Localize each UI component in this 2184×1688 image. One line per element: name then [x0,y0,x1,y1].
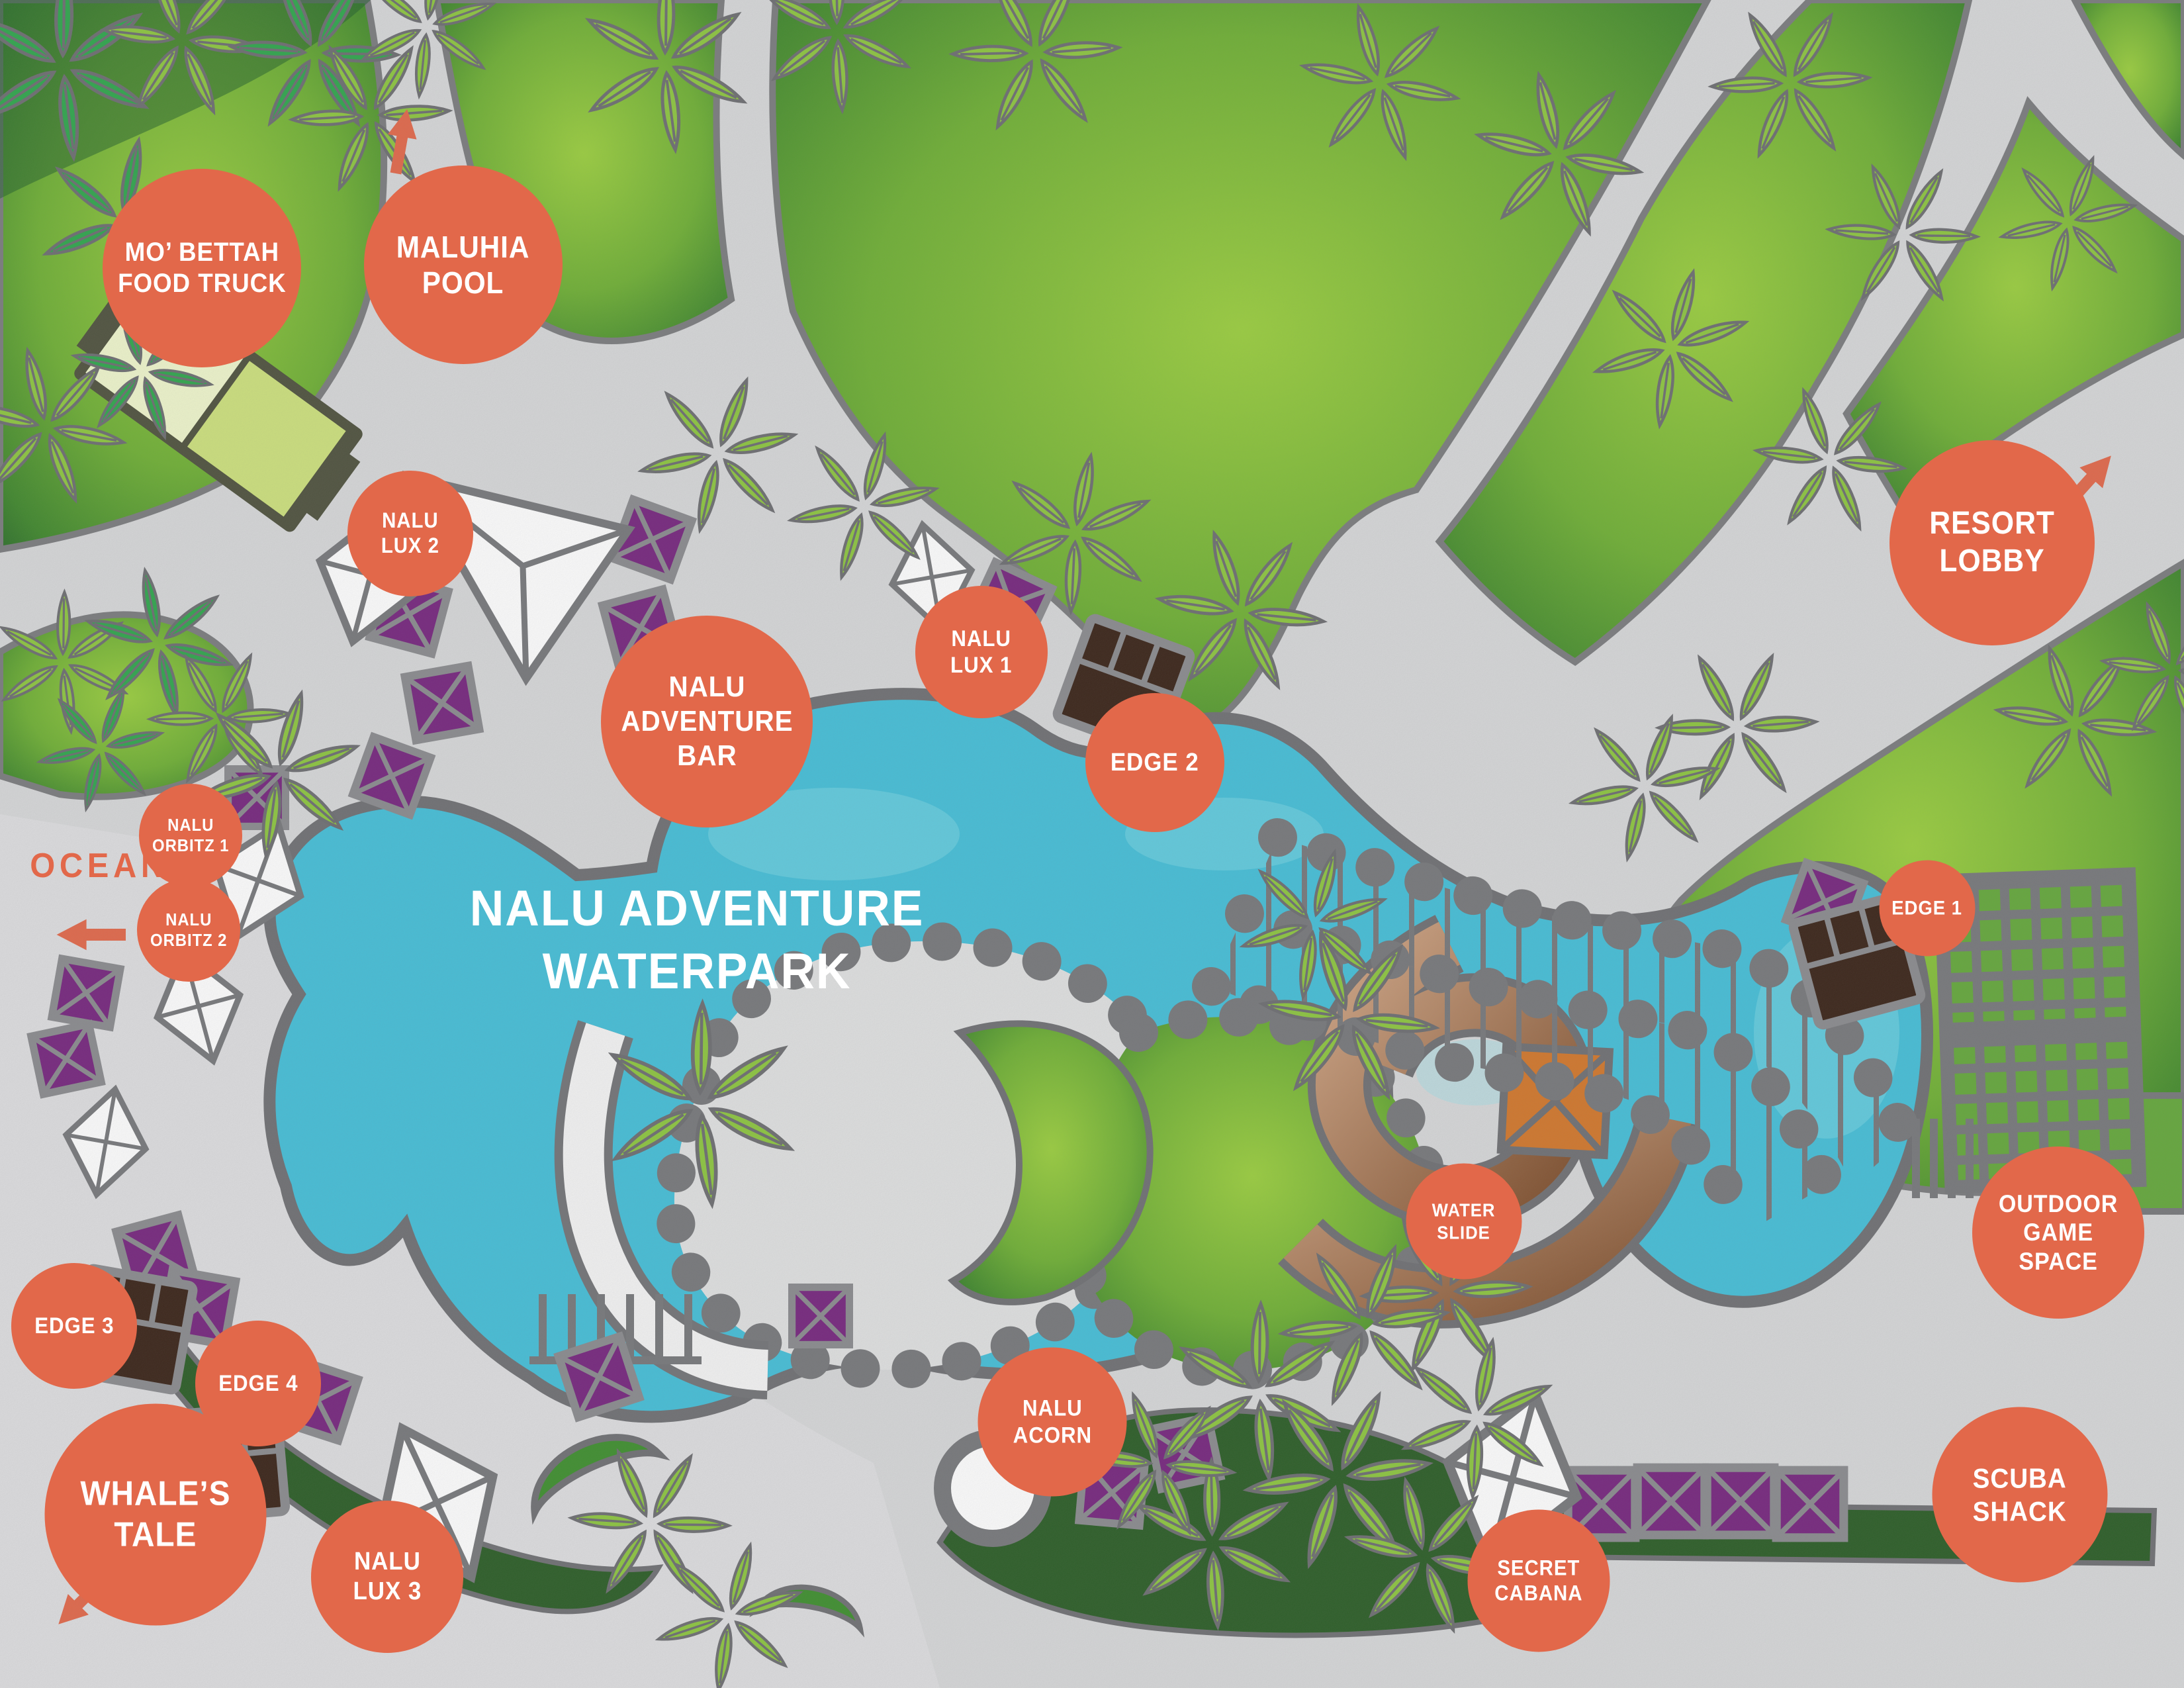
poi-outdoor-game-space: OUTDOOR GAME SPACE [1972,1147,2144,1319]
poi-nalu-orbitz-2: NALU ORBITZ 2 [137,878,240,982]
resort-map: NALU ADVENTURE WATERPARK OCEAN MO’ BETTA… [0,0,2184,1688]
poi-maluhia-pool: MALUHIA POOL [364,165,563,364]
poi-nalu-lux-2: NALU LUX 2 [347,471,473,596]
poi-nalu-adventure-bar: NALU ADVENTURE BAR [601,616,813,827]
waterpark-title: NALU ADVENTURE WATERPARK [455,877,938,1003]
poi-edge-3: EDGE 3 [11,1263,137,1389]
poi-edge-2: EDGE 2 [1085,693,1224,832]
poi-scuba-shack: SCUBA SHACK [1933,1407,2108,1583]
poi-edge-1: EDGE 1 [1880,861,1976,957]
poi-nalu-lux-1: NALU LUX 1 [915,586,1048,718]
poi-secret-cabana: SECRET CABANA [1468,1510,1610,1652]
poi-whales-tale: WHALE’S TALE [45,1404,267,1626]
poi-nalu-lux-3: NALU LUX 3 [311,1501,463,1653]
poi-nalu-acorn: NALU ACORN [978,1348,1127,1497]
poi-nalu-orbitz-1: NALU ORBITZ 1 [139,784,242,887]
poi-mo-bettah-food-truck: MO’ BETTAH FOOD TRUCK [103,169,301,367]
poi-resort-lobby: RESORT LOBBY [1889,440,2095,645]
poi-water-slide: WATER SLIDE [1406,1164,1522,1280]
